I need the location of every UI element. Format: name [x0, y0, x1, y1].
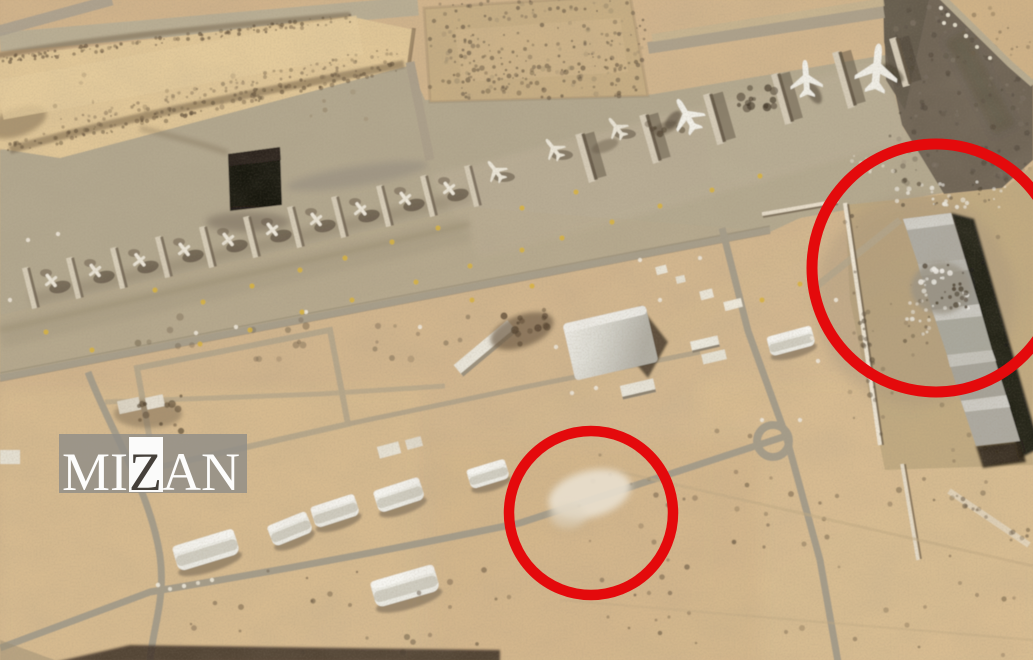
svg-text:Z: Z: [129, 442, 162, 502]
svg-text:MI: MI: [62, 442, 128, 502]
svg-text:AN: AN: [162, 442, 240, 502]
